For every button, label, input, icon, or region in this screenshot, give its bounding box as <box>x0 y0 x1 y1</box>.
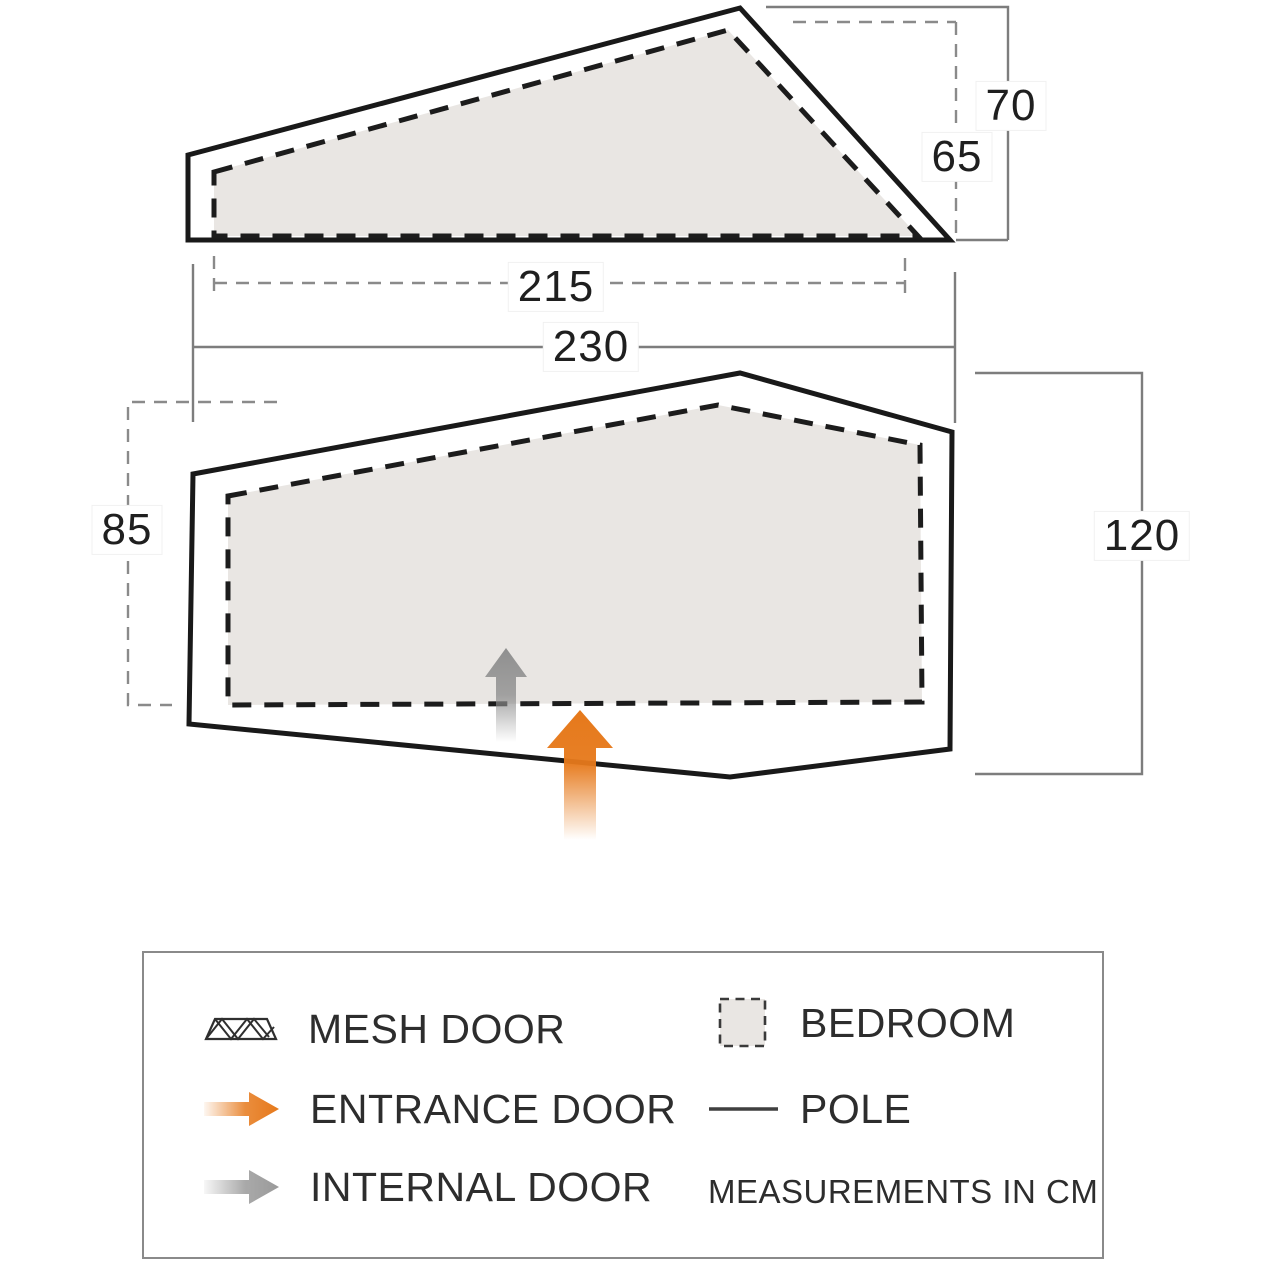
legend-label-bedroom: BEDROOM <box>800 1003 1015 1044</box>
legend-item-bedroom: BEDROOM <box>718 991 1015 1055</box>
side-inner-width-label: 215 <box>508 262 604 312</box>
floor-right-depth-label: 120 <box>1094 511 1190 561</box>
legend-label-pole: POLE <box>800 1089 911 1130</box>
legend-item-mesh-door: MESH DOOR <box>204 997 565 1061</box>
measurements-note-text: MEASUREMENTS IN CM <box>708 1175 1098 1208</box>
floor-plan <box>189 373 952 840</box>
legend-item-entrance-door: ENTRANCE DOOR <box>204 1077 676 1141</box>
legend-box: MESH DOOR ENTRANCE DOOR <box>142 951 1104 1259</box>
side-inner-height-label: 65 <box>922 132 993 182</box>
legend-label-internal-door: INTERNAL DOOR <box>310 1167 652 1208</box>
legend-item-internal-door: INTERNAL DOOR <box>204 1155 652 1219</box>
legend-label-entrance-door: ENTRANCE DOOR <box>310 1089 676 1130</box>
legend-measurements-note: MEASUREMENTS IN CM <box>708 1159 1098 1223</box>
pole-icon <box>708 1105 780 1113</box>
mesh-door-icon <box>204 1017 278 1041</box>
side-outer-height-label: 70 <box>976 81 1047 131</box>
floor-right-depth-bracket <box>975 373 1142 774</box>
bedroom-swatch-icon <box>718 997 768 1049</box>
floor-left-depth-label: 85 <box>92 505 163 555</box>
side-view <box>188 8 950 240</box>
legend-item-pole: POLE <box>708 1077 911 1141</box>
entrance-door-icon <box>204 1087 280 1131</box>
floor-width-label: 230 <box>543 322 639 372</box>
tent-dimensions-diagram: 70 65 215 230 85 120 MESH DOOR <box>0 0 1280 1280</box>
legend-label-mesh-door: MESH DOOR <box>308 1009 565 1050</box>
internal-door-icon <box>204 1165 280 1209</box>
